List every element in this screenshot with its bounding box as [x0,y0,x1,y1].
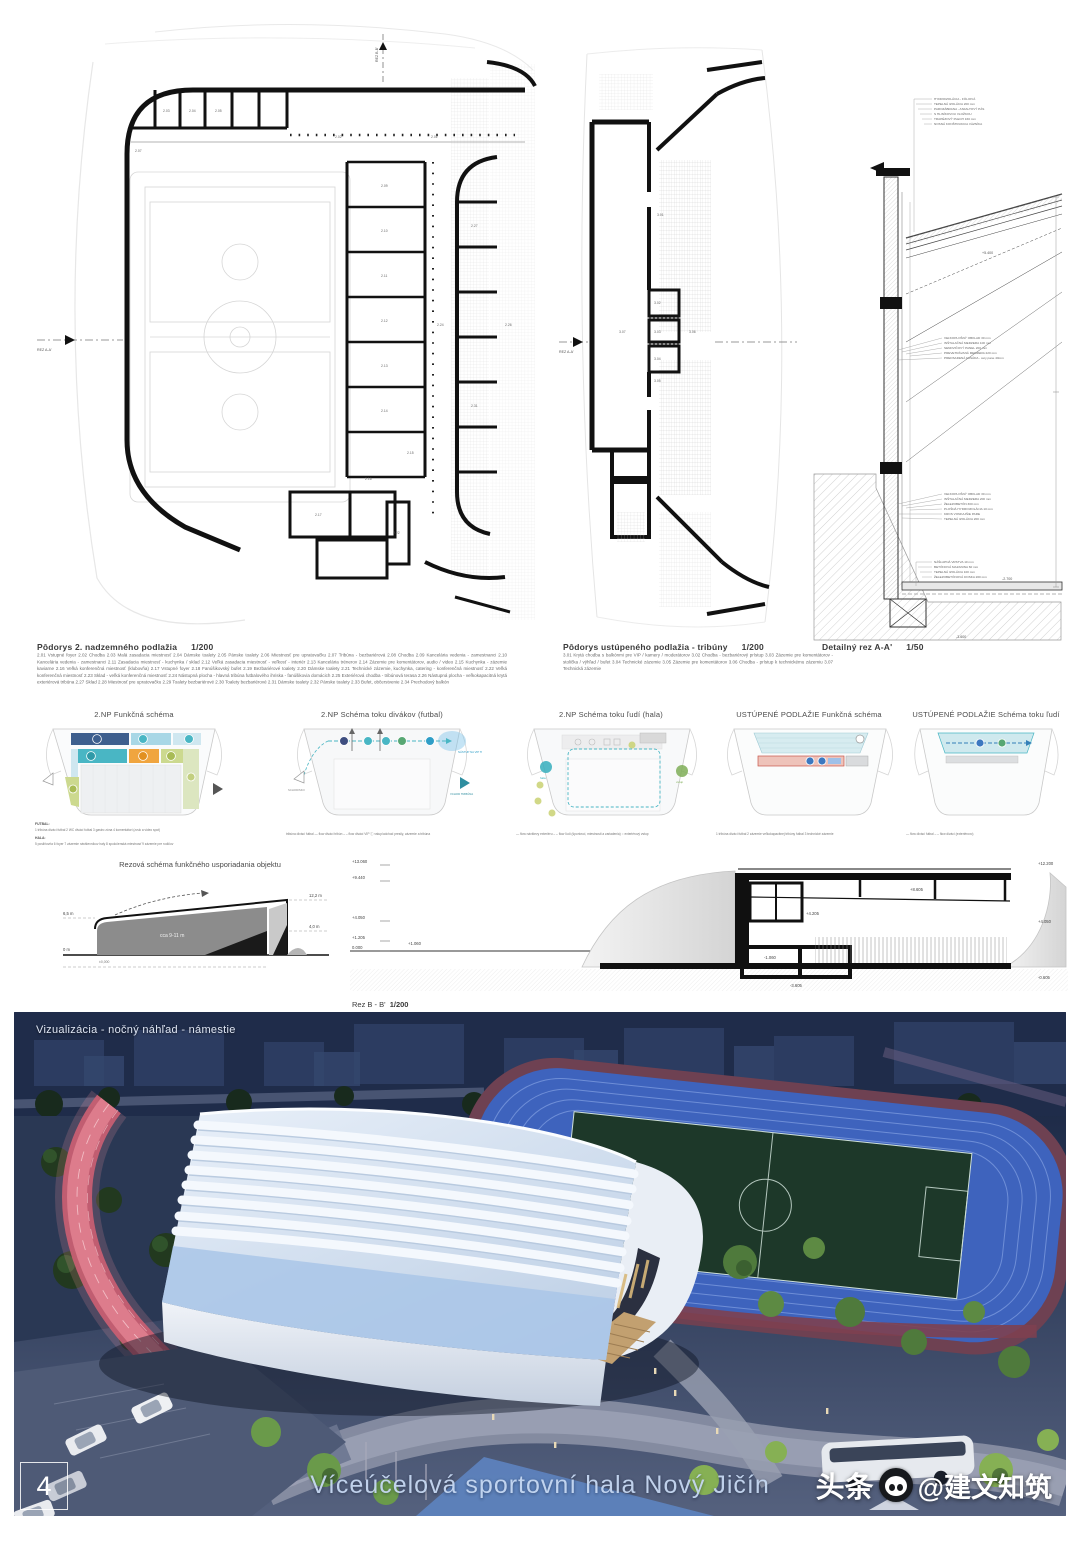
scheme-title: 2.NP Funkčná schéma [28,710,240,719]
svg-text:2.17: 2.17 [315,513,322,517]
plan-tribuny-drawing: REZ A-A' 3.01 3.02 3.03 3.04 3.05 3.06 3… [557,42,802,634]
svg-text:0 m: 0 m [63,947,70,952]
svg-text:TEPELNÁ IZOLÁCIA 200 mm: TEPELNÁ IZOLÁCIA 200 mm [944,517,985,521]
rez-bb-title: Rez B - B' 1/200 [352,994,408,1012]
tribune-entry-arrow-icon [460,777,470,789]
svg-text:INŠTALAČNÁ MEDZERA 200 mm: INŠTALAČNÁ MEDZERA 200 mm [944,496,991,501]
svg-text:+4.050: +4.050 [352,915,366,920]
svg-text:2.16: 2.16 [365,477,372,481]
svg-text:6,5 m: 6,5 m [63,911,74,916]
svg-text:PREDSADENÁ FASÁDA - cety pane: PREDSADENÁ FASÁDA - cety pane 40mm [944,356,1004,360]
svg-text:+12.200: +12.200 [1038,861,1054,866]
svg-text:VCHOD TRIBÚNA: VCHOD TRIBÚNA [450,791,473,796]
svg-text:2.12: 2.12 [381,319,388,323]
svg-text:FUTBAL:: FUTBAL: [35,822,50,826]
svg-text:tribúna divácí futbal ― fl: tribúna divácí futbal ― flow divácí trib… [286,831,430,836]
svg-text:PREVETRÁVANÁ MEDZERA 220 mm: PREVETRÁVANÁ MEDZERA 220 mm [944,351,997,355]
scheme-tok-divakov: 2.NP Schéma toku divákov (futbal) NÁS [282,710,482,858]
svg-text:2.07: 2.07 [135,149,142,153]
plan-2np-drawing: REZ A-A' REZ B-B' 2.01 2.02 2.03 2.04 2.… [35,22,540,634]
svg-text:+9.440: +9.440 [352,875,366,880]
night-visualization: Vizualizácia - nočný náhľad - námestie 4… [14,1012,1066,1516]
section-arrow-icon [65,335,75,345]
vstup-node [676,765,688,777]
scheme-ustupene-tok-diagram: ― flow divácí futbal – – flow divácí (ex… [902,719,1070,853]
tribune-upper-hatch [659,160,711,332]
svg-text:-2.700: -2.700 [1002,577,1012,581]
svg-text:2.15: 2.15 [407,451,414,455]
svg-text:cca 9-11 m: cca 9-11 m [160,933,184,939]
scheme-title: 2.NP Schéma toku divákov (futbal) [282,710,482,719]
svg-text:+13.060: +13.060 [352,859,368,864]
svg-text:2.22: 2.22 [393,531,400,535]
scheme-tok-ludi-hala: 2.NP Schéma toku ľudí (hala) hala vstup … [512,710,710,858]
svg-text:BETÓNOVÁ MAZANINA 60 mm: BETÓNOVÁ MAZANINA 60 mm [934,564,979,569]
svg-text:REZ B-B': REZ B-B' [375,47,379,62]
svg-text:12,2 m: 12,2 m [309,893,322,898]
rez-bb-drawing: +13.060 +9.440 +4.050 +1.205 0.000 +1.06… [350,845,1068,993]
svg-text:hala: hala [540,776,546,780]
svg-text:2.27: 2.27 [471,224,478,228]
svg-text:VEĽKOPLOŠNÝ OBKLAD 30 mm: VEĽKOPLOŠNÝ OBKLAD 30 mm [944,335,991,340]
svg-text:+4.205: +4.205 [806,911,820,916]
scheme-ustupene-funkcna-diagram: 1 tribúna divácí futbal 2 zázemie veľkok… [712,719,906,853]
svg-text:PLOŠNÁ HYDROIZOLÁCIA 10 mm: PLOŠNÁ HYDROIZOLÁCIA 10 mm [944,506,993,511]
svg-text:2.03: 2.03 [163,109,170,113]
presentation-board: REZ A-A' REZ B-B' 2.01 2.02 2.03 2.04 2.… [0,0,1080,1542]
viz-caption: Vizualizácia - nočný náhľad - námestie [36,1024,236,1036]
scheme-funkcna-diagram: FUTBAL: 1 tribúna divácí futbal 2 WC div… [28,719,240,853]
svg-text:3.02: 3.02 [654,301,661,305]
svg-text:ŽELEZOBETÓNOVÁ DOSKA 200 mm: ŽELEZOBETÓNOVÁ DOSKA 200 mm [934,574,987,579]
svg-text:2.24: 2.24 [437,323,444,327]
entry-arrow-dark-icon [213,783,223,795]
svg-text:3.07: 3.07 [619,330,626,334]
scheme-tok-ludi-diagram: hala vstup ― flow návštevy exteriéru – –… [512,719,710,853]
rez-schema-block: Rezová schéma funkčného usporiadania obj… [55,860,345,992]
section-marker-a: REZ A-A' [37,335,123,352]
svg-text:+1.060: +1.060 [408,941,422,946]
svg-text:±0,000: ±0,000 [99,960,109,964]
svg-text:ŽELEZOBETÓN 300 mm: ŽELEZOBETÓN 300 mm [944,501,979,506]
svg-text:1 tribúna divácí futbal 2 z: 1 tribúna divácí futbal 2 zázemie veľkok… [716,832,834,836]
tribune-elevation-lines [815,937,1007,963]
hall-court-markings [130,172,350,502]
svg-text:+5.400: +5.400 [982,251,993,255]
scheme-funkcna-2np: 2.NP Funkčná schéma [28,710,240,858]
svg-text:2.13: 2.13 [381,364,388,368]
render-scene [14,1012,1066,1516]
svg-text:TEPELNÁ IZOLÁCIA 200 mm: TEPELNÁ IZOLÁCIA 200 mm [934,102,975,106]
svg-text:TEPELNÁ IZOLÁCIA 100 mm: TEPELNÁ IZOLÁCIA 100 mm [934,570,975,574]
ground-hatch [814,474,1061,640]
scheme-ustupene-tok: USTÚPENÉ PODLAŽIE Schéma toku ľudí ― flo… [902,710,1070,858]
detail-levels: +5.400 -2.700 -3.600 [956,251,1012,639]
svg-text:0.000: 0.000 [352,945,363,950]
svg-text:2.01: 2.01 [431,135,438,139]
annotations-roof: HYDROIZOLÁCIA - FÓLIOVÁ TEPELNÁ IZOLÁCIA… [914,96,984,232]
svg-text:3.01: 3.01 [657,213,664,217]
svg-text:― flow návštevy exteriéru: ― flow návštevy exteriéru – – flow ľudí … [516,832,649,836]
scheme-ustupene-funkcna: USTÚPENÉ PODLAŽIE Funkčná schéma 1 tribú… [712,710,906,858]
plan-tribuny-legend: 3.01 Krytá chodba s balkónmi pre VIP / k… [563,652,1080,693]
watermark: 头条 @建文知筑 [816,1464,1052,1506]
panda-logo-icon [879,1468,913,1502]
svg-text:2.26: 2.26 [505,323,512,327]
svg-text:+8.605: +8.605 [910,887,924,892]
svg-text:NÁŠĽAPNÁ VRSTVA 10 mm: NÁŠĽAPNÁ VRSTVA 10 mm [934,559,974,564]
svg-text:-0.605: -0.605 [1038,975,1051,980]
svg-text:TRAPÉZOVÝ PLECH 160 mm: TRAPÉZOVÝ PLECH 160 mm [934,116,976,121]
svg-text:5 posilňovňa 6 foyer 7 z: 5 posilňovňa 6 foyer 7 zázemie návštevní… [35,842,174,846]
svg-text:HALA:: HALA: [35,836,46,840]
hala-node [540,761,552,773]
svg-text:4,0 m: 4,0 m [309,924,320,929]
svg-text:3.06: 3.06 [689,330,696,334]
svg-text:2.10: 2.10 [381,229,388,233]
svg-text:S HLINÍKOVOU VLOŽKOU: S HLINÍKOVOU VLOŽKOU [934,111,972,116]
rez-schema-title: Rezová schéma funkčného usporiadania obj… [55,860,345,869]
tech-band [846,756,868,766]
svg-text:-3.600: -3.600 [956,635,966,639]
watermark-brand: 头条 [816,1464,874,1506]
svg-text:3.05: 3.05 [654,379,661,383]
svg-text:2.04: 2.04 [189,109,196,113]
svg-text:vstup: vstup [676,780,684,784]
scheme-title: USTÚPENÉ PODLAŽIE Schéma toku ľudí [902,710,1070,719]
svg-text:-3.605: -3.605 [790,983,803,988]
tribune-lower-hatch [659,360,711,495]
svg-text:+4.050: +4.050 [1038,919,1052,924]
svg-text:― flow divácí futbal – – f: ― flow divácí futbal – – flow divácí (ex… [906,832,974,836]
right-sail-shape [1005,873,1066,967]
svg-text:REZ A-A': REZ A-A' [559,350,574,354]
svg-text:KROS VONKAJŠIE PARE: KROS VONKAJŠIE PARE [944,511,980,516]
svg-text:2.14: 2.14 [381,409,388,413]
svg-text:2.11: 2.11 [381,274,387,278]
svg-text:1 tribúna divácí futbal 2 W: 1 tribúna divácí futbal 2 WC divácí futb… [35,828,160,832]
scheme-tok-divakov-diagram: NÁSTUP NA VIP TRIBÚNU VCHOD TRIBÚNA SCHO… [282,719,482,853]
detail-title: Detailný rez A-A'1/50 [822,637,924,655]
scheme-title: 2.NP Schéma toku ľudí (hala) [512,710,710,719]
left-sail-shape [582,871,735,967]
svg-text:3.03: 3.03 [654,330,661,334]
entry-arrow-icon [43,773,53,785]
stairs-arrow-icon [294,771,304,783]
svg-text:HYDROIZOLÁCIA - FÓLIOVÁ: HYDROIZOLÁCIA - FÓLIOVÁ [934,96,976,101]
annotations-wall-lower: VEĽKOPLOŠNÝ OBKLAD 30 mm INŠTALAČNÁ MEDZ… [898,491,993,521]
svg-text:2.09: 2.09 [381,184,388,188]
watermark-handle: @建文知筑 [918,1466,1052,1505]
rez-schema-diagram: 6,5 m 0 m 12,2 m 4,0 m cca 9-11 m ±0,000 [55,869,345,987]
svg-text:2.31: 2.31 [471,404,478,408]
svg-text:2.02: 2.02 [335,135,342,139]
svg-text:INŠTALAČNÁ MEDZERA 100 mm: INŠTALAČNÁ MEDZERA 100 mm [944,340,991,345]
svg-text:+1.205: +1.205 [352,935,366,940]
svg-text:VEĽKOPLOŠNÝ OBKLAD 30 mm: VEĽKOPLOŠNÝ OBKLAD 30 mm [944,491,991,496]
scheme-title: USTÚPENÉ PODLAŽIE Funkčná schéma [712,710,906,719]
svg-text:NOSNÁ KONŠTRUKCIA VÄZNÍKA: NOSNÁ KONŠTRUKCIA VÄZNÍKA [934,121,983,126]
svg-text:PAROZÁBRANA - ASFALTOVÝ PÁS: PAROZÁBRANA - ASFALTOVÝ PÁS [934,107,984,111]
svg-text:REZ A-A': REZ A-A' [37,348,52,352]
svg-text:3.04: 3.04 [654,357,661,361]
svg-text:-1.060: -1.060 [764,955,777,960]
flow-arrow-icon [201,890,209,897]
annotations-wall-upper: VEĽKOPLOŠNÝ OBKLAD 30 mm INŠTALAČNÁ MEDZ… [898,335,1004,360]
svg-text:NÁSTUP NA VIP TRIBÚNU: NÁSTUP NA VIP TRIBÚNU [458,749,482,754]
svg-text:SCHODISKO: SCHODISKO [288,788,306,792]
svg-text:SENDVIČOVÝ PANEL 200 mm: SENDVIČOVÝ PANEL 200 mm [944,345,987,350]
detail-drawing: HYDROIZOLÁCIA - FÓLIOVÁ TEPELNÁ IZOLÁCIA… [806,42,1068,644]
svg-text:2.05: 2.05 [215,109,222,113]
